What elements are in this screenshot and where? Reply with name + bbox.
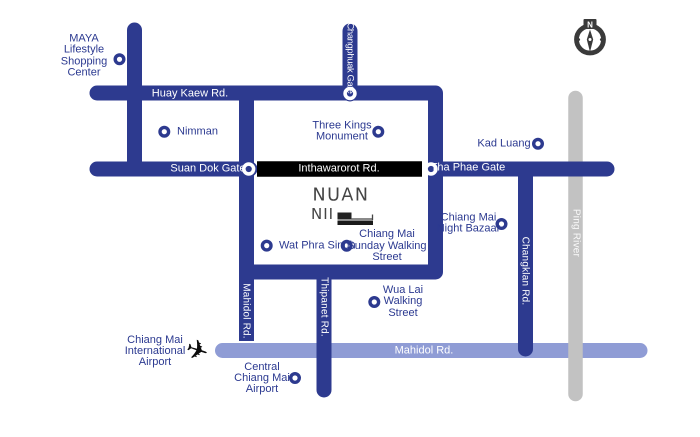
logo-tagline-bar [338, 221, 374, 226]
nimman-marker [160, 127, 169, 136]
kad-luang-marker [534, 139, 543, 148]
three-kings-label: Three Kings Monument [312, 120, 371, 143]
logo-building-shape [338, 213, 352, 220]
huay-kaew-road-label: Huay Kaew Rd. [152, 88, 228, 99]
compass-icon: N [577, 19, 604, 53]
central-airport-label: Central Chiang Mai Airport [234, 362, 290, 396]
chiang-mai-map: N NUAN NII Huay Kaew Rd. Suan Dok Gate I… [0, 0, 700, 437]
logo-line1: NUAN [313, 186, 370, 206]
sunday-walking-label: Chiang Mai Sunday Walking Street [347, 229, 426, 263]
night-bazaar-label: Chiang Mai Night Bazaar [437, 212, 501, 235]
three-kings-marker [374, 127, 383, 136]
mahidol-vertical-road-label: Mahidol Rd. [240, 283, 251, 339]
logo-line2: NII [311, 205, 334, 223]
changphuak-gate-label: Changphuak Gate [344, 22, 355, 93]
compass-east-tick [600, 38, 603, 41]
wat-phra-singh-marker [262, 241, 271, 250]
kad-luang-label: Kad Luang [477, 138, 530, 149]
central-airport-marker [291, 374, 300, 383]
international-airport-label: Chiang Mai International Airport [125, 335, 186, 369]
mahidol-road-label: Mahidol Rd. [395, 345, 454, 356]
wua-lai-marker [370, 298, 379, 307]
ping-river-label: Ping River [570, 209, 581, 257]
compass-north-label: N [587, 20, 593, 29]
suan-dok-gate-label: Suan Dok Gate [170, 163, 245, 174]
logo-underline [351, 215, 373, 221]
compass-west-tick [578, 38, 581, 41]
inthawarorot-road-label: Inthawarorot Rd. [298, 163, 379, 174]
nuan-nii-logo: NUAN NII [311, 186, 373, 226]
maya-label: MAYA Lifestyle Shopping Center [61, 33, 108, 78]
nimman-label: Nimman [177, 126, 218, 137]
changklan-road-label: Changklan Rd. [519, 237, 530, 306]
maya-marker [115, 55, 124, 64]
tha-phae-gate-label: Tha Phae Gate [431, 162, 506, 173]
thipanet-road-label: Thipanet Rd. [318, 277, 329, 337]
wat-phra-singh-label: Wat Phra Singh [279, 240, 356, 251]
wua-lai-label: Wua Lai Walking Street [383, 285, 423, 319]
compass-hub [588, 38, 592, 42]
